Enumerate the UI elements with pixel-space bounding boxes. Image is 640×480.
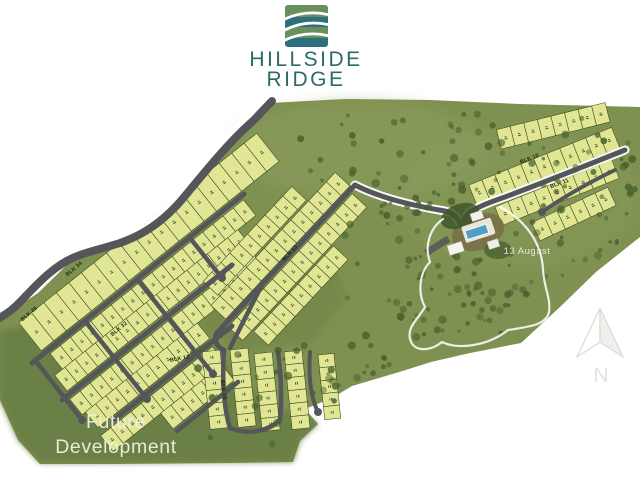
tree	[542, 157, 545, 160]
tree	[421, 150, 425, 154]
tree	[252, 403, 259, 410]
tree	[412, 194, 419, 201]
tree	[317, 157, 323, 163]
tree	[586, 149, 591, 154]
tree	[579, 116, 584, 121]
tree	[399, 317, 403, 321]
tree	[386, 222, 389, 225]
brand-title: HILLSIDE RIDGE	[0, 50, 612, 90]
lot-parcel	[257, 378, 276, 393]
tree	[381, 364, 386, 369]
tree	[342, 232, 349, 239]
tree	[413, 257, 417, 261]
lot-parcel	[289, 402, 308, 417]
tree	[396, 215, 403, 222]
tree	[437, 273, 443, 279]
tree	[454, 285, 462, 293]
tree	[470, 301, 475, 306]
tree	[598, 248, 603, 253]
tree	[541, 203, 546, 208]
tree	[540, 182, 546, 188]
tree	[424, 204, 431, 211]
tree	[480, 291, 484, 295]
culdesac-bulb	[218, 274, 226, 282]
tree	[483, 319, 486, 322]
tree	[376, 171, 381, 176]
lot-parcel	[237, 413, 256, 428]
tree	[448, 198, 456, 206]
tree	[387, 298, 391, 302]
tree	[631, 186, 637, 192]
tree	[320, 386, 327, 393]
tree	[554, 189, 560, 195]
tree	[308, 168, 313, 173]
tree	[311, 390, 316, 395]
tree	[464, 284, 470, 290]
tree	[454, 266, 461, 273]
tree	[349, 167, 356, 174]
tree	[340, 123, 344, 127]
tree	[503, 303, 508, 308]
culdesac-bulb	[143, 395, 151, 403]
tree	[293, 347, 300, 354]
tree	[469, 160, 475, 166]
tree	[407, 301, 413, 307]
future-development-label-line1: Future	[86, 411, 146, 433]
tree	[398, 186, 402, 190]
tree	[448, 292, 452, 296]
date-annotation: 13 August	[504, 246, 551, 257]
tree	[417, 277, 420, 280]
lot-parcel	[318, 353, 335, 368]
tree	[404, 203, 410, 209]
tree	[471, 271, 476, 276]
tree	[467, 292, 472, 297]
tree	[450, 154, 458, 162]
tree	[379, 138, 385, 144]
tree	[582, 257, 588, 263]
tree	[608, 240, 611, 243]
tree	[513, 231, 519, 237]
tree	[301, 342, 308, 349]
tree	[382, 356, 386, 360]
tree	[494, 178, 498, 182]
tree	[615, 241, 619, 245]
tree	[331, 398, 336, 403]
tree	[419, 255, 422, 258]
tree	[420, 317, 426, 323]
tree	[282, 357, 285, 360]
tree	[473, 286, 478, 291]
tree	[466, 321, 470, 325]
tree	[490, 305, 497, 312]
tree	[346, 221, 353, 228]
tree	[628, 155, 636, 163]
tree	[349, 132, 356, 139]
tree	[345, 295, 350, 300]
tree	[439, 316, 447, 324]
tree	[477, 257, 482, 262]
tree	[379, 210, 384, 215]
tree	[297, 135, 304, 142]
tree	[417, 202, 421, 206]
tree	[346, 113, 350, 117]
tree	[393, 299, 400, 306]
tree	[508, 264, 512, 268]
lot-parcel	[322, 392, 339, 407]
tree	[623, 162, 629, 168]
tree	[461, 112, 466, 117]
tree	[457, 329, 460, 332]
tree	[348, 341, 356, 349]
tree	[382, 201, 387, 206]
tree	[475, 187, 479, 191]
tree	[274, 347, 281, 354]
tree	[414, 228, 420, 234]
tree	[625, 140, 630, 145]
brand-title-line1: HILLSIDE	[0, 50, 612, 70]
tree	[383, 212, 390, 219]
tree	[527, 142, 531, 146]
tree	[320, 178, 324, 182]
tree	[461, 302, 466, 307]
tree	[370, 370, 376, 376]
tree	[368, 343, 373, 348]
tree	[486, 317, 492, 323]
tree	[458, 181, 465, 188]
tree	[449, 138, 455, 144]
tree	[365, 364, 369, 368]
tree	[400, 306, 407, 313]
tree	[542, 146, 546, 150]
lot-parcel	[323, 405, 340, 420]
tree	[553, 160, 559, 166]
tree	[455, 127, 461, 133]
tree	[332, 383, 339, 390]
tree	[426, 307, 431, 312]
tree	[604, 216, 608, 220]
tree	[489, 122, 495, 128]
tree	[234, 351, 241, 358]
tree	[571, 259, 574, 262]
hillside-ridge-logo	[285, 5, 328, 47]
lot-parcel	[284, 350, 303, 365]
lot-parcel	[260, 404, 279, 419]
culdesac-bulb	[209, 370, 217, 378]
tree	[484, 297, 491, 304]
future-development-label-line2: Development	[55, 436, 177, 458]
tree	[590, 169, 596, 175]
tree	[284, 372, 292, 380]
tree	[452, 182, 456, 186]
tree	[475, 129, 482, 136]
lot-parcel	[234, 387, 253, 402]
tree	[196, 346, 203, 353]
tree	[355, 261, 360, 266]
tree	[371, 179, 379, 187]
tree	[497, 139, 505, 147]
tree	[594, 252, 602, 260]
tree	[560, 236, 564, 240]
tree	[451, 172, 456, 177]
tree	[620, 158, 624, 162]
tree	[474, 111, 481, 118]
tree	[389, 201, 392, 204]
tree	[561, 274, 564, 277]
tree	[529, 219, 535, 225]
tree	[209, 394, 216, 401]
tree	[504, 291, 511, 298]
tree	[435, 263, 441, 269]
lot-parcel	[235, 400, 254, 415]
tree	[405, 264, 409, 268]
tree	[488, 188, 495, 195]
tree	[405, 256, 412, 263]
tree	[269, 440, 276, 447]
tree	[362, 332, 370, 340]
tree	[273, 419, 281, 427]
tree	[479, 307, 485, 313]
tree	[256, 394, 263, 401]
tree	[529, 280, 533, 284]
tree	[519, 286, 526, 293]
tree	[434, 326, 441, 333]
tree	[363, 371, 367, 375]
lot-parcel	[291, 415, 310, 430]
tree	[412, 209, 419, 216]
tree	[422, 332, 426, 336]
site-plan-page: BLK 34BLK 35BLK 32BLK 23BLK 12BLK 25BLK …	[0, 0, 640, 480]
tree	[625, 212, 629, 216]
tree	[496, 307, 503, 314]
tree	[207, 435, 213, 441]
tree	[350, 140, 357, 147]
tree	[412, 333, 420, 341]
culdesac-bulb	[78, 416, 86, 424]
tree	[488, 288, 496, 296]
tree	[274, 369, 279, 374]
tree	[533, 229, 540, 236]
tree	[497, 171, 501, 175]
tree	[512, 283, 519, 290]
lot-parcel	[231, 361, 250, 376]
north-label: N	[593, 364, 608, 387]
tree	[476, 313, 483, 320]
tree	[400, 175, 408, 183]
tree	[558, 208, 563, 213]
tree	[446, 162, 451, 167]
north-arrow-icon: N	[577, 308, 623, 387]
tree	[500, 150, 506, 156]
tree	[436, 193, 440, 197]
tree	[600, 138, 607, 145]
culdesac-bulb	[314, 408, 322, 416]
tree	[430, 287, 434, 291]
tree	[573, 169, 577, 173]
tree	[597, 212, 602, 217]
tree	[557, 239, 564, 246]
tree	[395, 236, 403, 244]
tree	[194, 364, 202, 372]
tree	[595, 132, 601, 138]
tree	[432, 190, 437, 195]
tree	[254, 375, 259, 380]
brand-title-line2: RIDGE	[0, 70, 612, 90]
tree	[400, 118, 406, 124]
tree	[386, 362, 392, 368]
tree	[450, 125, 454, 129]
tree	[328, 366, 335, 373]
lot-parcel	[288, 389, 307, 404]
tree	[485, 142, 493, 150]
tree	[396, 150, 403, 157]
tree	[190, 351, 195, 356]
tree	[353, 374, 361, 382]
tree	[561, 131, 569, 139]
tree	[440, 328, 444, 332]
lot-parcel	[254, 352, 273, 367]
tree	[599, 194, 604, 199]
culdesac-bulb	[538, 208, 546, 216]
tree	[391, 119, 398, 126]
